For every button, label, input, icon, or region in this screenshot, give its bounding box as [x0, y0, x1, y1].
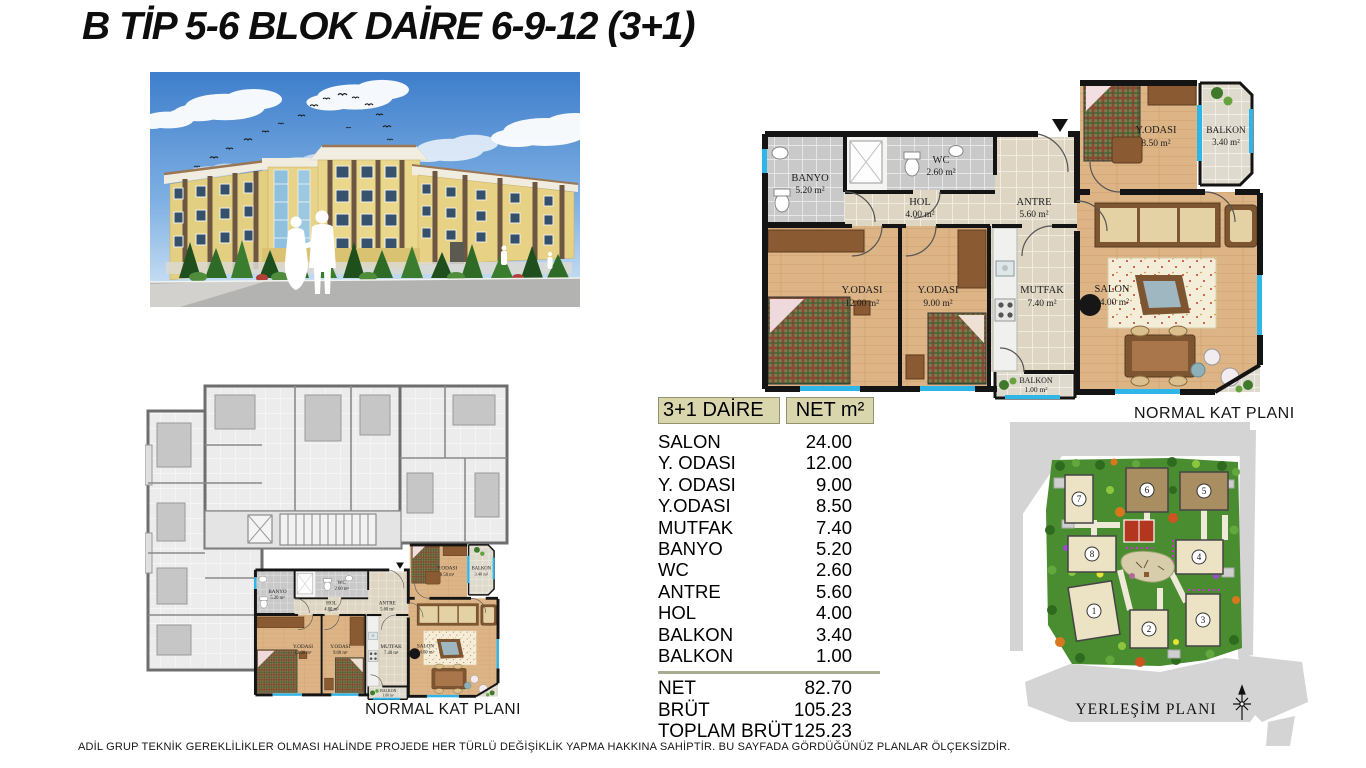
svg-text:4: 4 — [1197, 552, 1202, 562]
table-total-row: NET82.70 — [658, 678, 852, 700]
unit-floorplan-large: BANYO5.20 m² WC2.60 m² HOL4.00 m² ANTRE5… — [760, 75, 1265, 405]
unit-plan-copy — [254, 543, 499, 699]
table-row: ANTRE5.60 — [658, 581, 852, 602]
svg-text:4.00 m²: 4.00 m² — [905, 210, 934, 220]
svg-text:7.40 m²: 7.40 m² — [1027, 299, 1056, 309]
table-header-net: NET m² — [786, 397, 874, 424]
table-divider — [658, 671, 880, 674]
table-row: Y. ODASI12.00 — [658, 452, 852, 473]
svg-text:3.40 m²: 3.40 m² — [1212, 137, 1240, 147]
svg-text:6: 6 — [1145, 485, 1150, 495]
svg-text:5: 5 — [1202, 486, 1207, 496]
table-row: Y. ODASI9.00 — [658, 474, 852, 495]
svg-text:ANTRE: ANTRE — [1017, 197, 1052, 208]
building-rendering-image — [150, 72, 580, 307]
svg-text:1: 1 — [1092, 606, 1097, 616]
svg-text:BALKON: BALKON — [1206, 126, 1246, 136]
svg-text:Y.ODASI: Y.ODASI — [842, 285, 883, 296]
svg-text:3: 3 — [1201, 615, 1206, 625]
table-row: SALON24.00 — [658, 431, 852, 452]
svg-text:8: 8 — [1090, 549, 1095, 559]
svg-text:SALON: SALON — [1094, 284, 1129, 295]
disclaimer-text: ADİL GRUP TEKNİK GEREKLİLİKLER OLMASI HA… — [78, 741, 1010, 753]
table-total-row: TOPLAM BRÜT125.23 — [658, 721, 852, 743]
table-header: 3+1 DAİRE NET m² — [658, 397, 880, 424]
svg-text:Y.ODASI: Y.ODASI — [918, 285, 959, 296]
svg-text:MUTFAK: MUTFAK — [1020, 285, 1064, 296]
table-total-row: BRÜT105.23 — [658, 700, 852, 722]
svg-text:HOL: HOL — [909, 197, 931, 208]
svg-text:1.00 m²: 1.00 m² — [1024, 385, 1048, 394]
svg-text:8.50 m²: 8.50 m² — [1141, 139, 1170, 149]
svg-text:9.00 m²: 9.00 m² — [923, 299, 952, 309]
svg-text:5.20 m²: 5.20 m² — [795, 186, 824, 196]
entrance-arrow-icon — [1052, 119, 1068, 132]
svg-text:12.00 m²: 12.00 m² — [845, 299, 879, 309]
area-table: 3+1 DAİRE NET m² SALON24.00 Y. ODASI12.0… — [658, 397, 880, 743]
floorplan-small — [145, 383, 515, 705]
table-row: BALKON3.40 — [658, 624, 852, 645]
caption-normal-kat-plani-bottom: NORMAL KAT PLANI — [318, 701, 568, 719]
page-title: B TİP 5-6 BLOK DAİRE 6-9-12 (3+1) — [82, 5, 694, 49]
table-body: SALON24.00 Y. ODASI12.00 Y. ODASI9.00 Y.… — [658, 431, 880, 666]
svg-text:Y.ODASI: Y.ODASI — [1136, 125, 1177, 136]
table-row: WC2.60 — [658, 559, 852, 580]
brochure-page: B TİP 5-6 BLOK DAİRE 6-9-12 (3+1) — [0, 0, 1366, 768]
staircase — [280, 514, 376, 545]
room-hol — [845, 190, 995, 226]
svg-text:24.00 m²: 24.00 m² — [1095, 298, 1129, 308]
svg-text:5.60 m²: 5.60 m² — [1019, 210, 1048, 220]
table-row: HOL4.00 — [658, 602, 852, 623]
svg-text:2.60 m²: 2.60 m² — [926, 168, 955, 178]
svg-text:BALKON: BALKON — [1019, 376, 1053, 385]
svg-text:7: 7 — [1077, 494, 1082, 504]
svg-text:BANYO: BANYO — [791, 173, 829, 184]
svg-text:WC: WC — [933, 155, 950, 166]
table-row: BANYO5.20 — [658, 538, 852, 559]
siteplan: 7 6 5 8 4 1 2 3 YERLEŞİM PLANI — [1010, 420, 1360, 750]
table-row: Y.ODASI8.50 — [658, 495, 852, 516]
table-row: MUTFAK7.40 — [658, 517, 852, 538]
svg-text:2: 2 — [1147, 624, 1152, 634]
table-row: BALKON1.00 — [658, 645, 852, 666]
table-totals: NET82.70 BRÜT105.23 TOPLAM BRÜT125.23 — [658, 678, 880, 743]
caption-yerlesim-plani: YERLEŞİM PLANI — [1075, 701, 1216, 718]
entrance-door — [450, 242, 464, 264]
table-header-daire: 3+1 DAİRE — [658, 397, 780, 424]
apartment-unit-geometry: BANYO5.20 m² WC2.60 m² HOL4.00 m² ANTRE5… — [762, 80, 1262, 399]
